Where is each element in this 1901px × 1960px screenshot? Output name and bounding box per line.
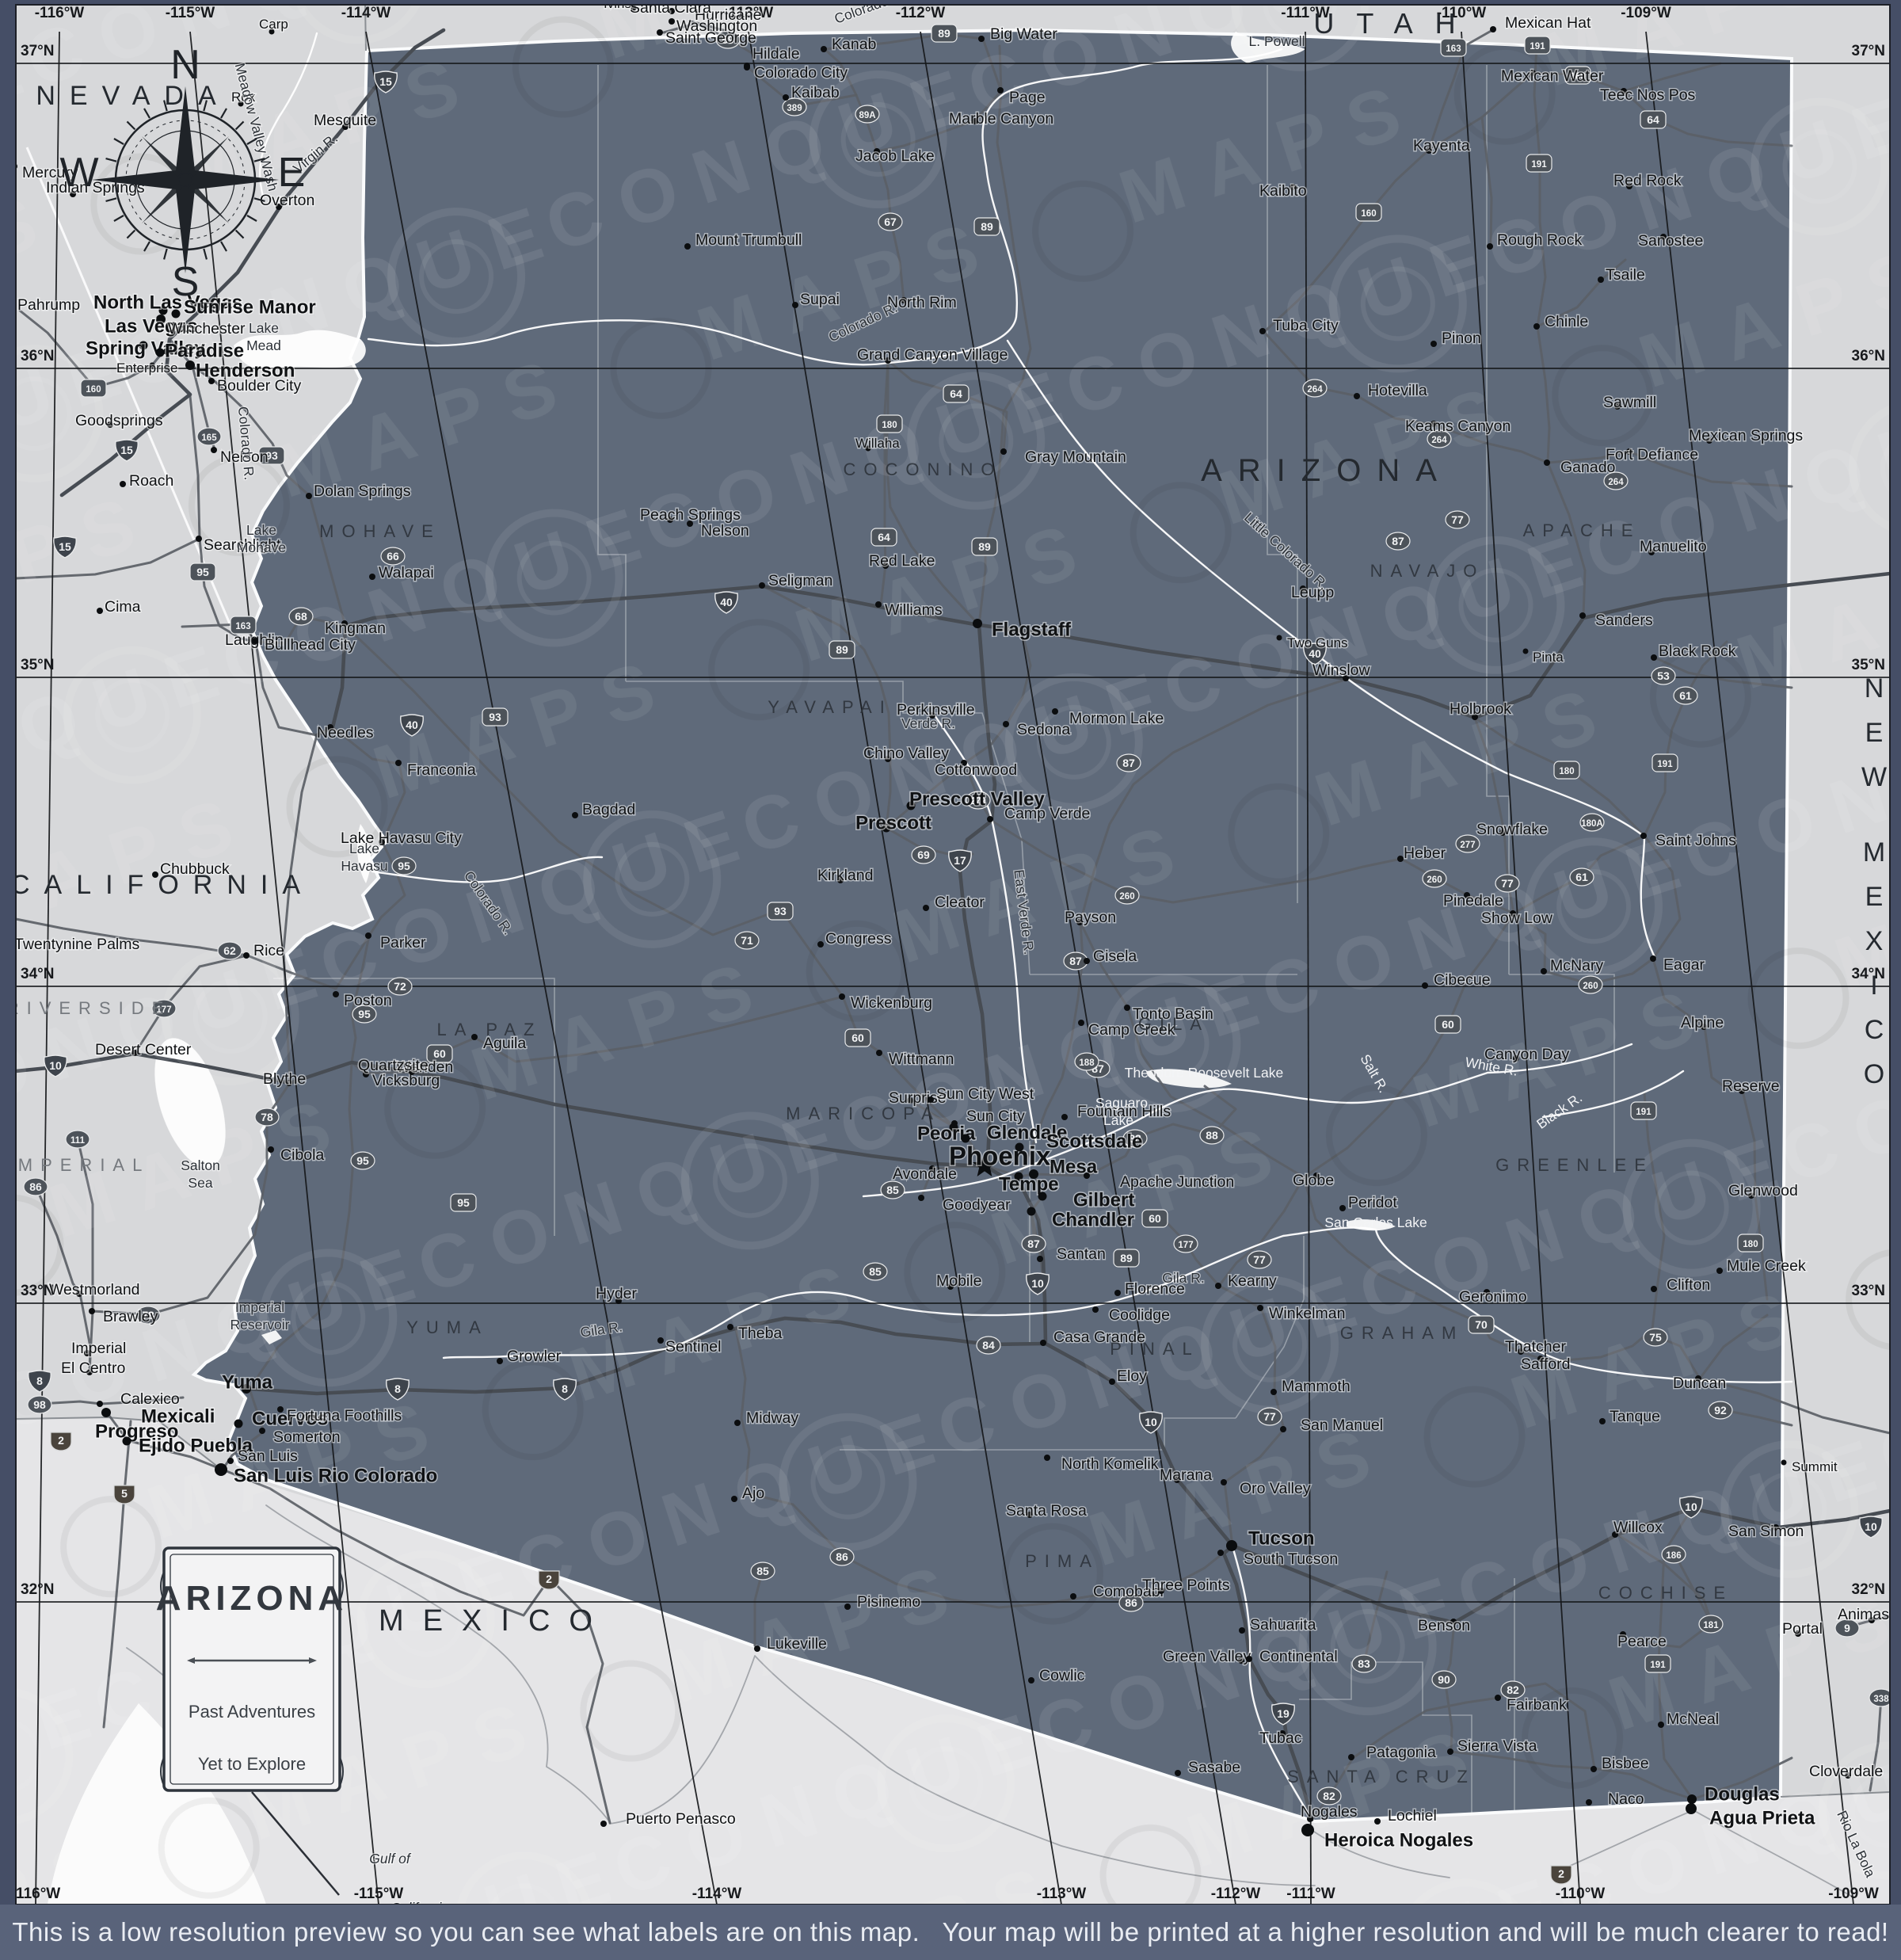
city-label: Supai (800, 291, 840, 308)
svg-text:85: 85 (886, 1184, 899, 1196)
city-dot (684, 243, 691, 250)
city-dot (1061, 1114, 1068, 1120)
city-label: Wickenburg (851, 994, 932, 1012)
city-label: Eagar (1663, 956, 1705, 974)
city-dot (727, 1324, 733, 1330)
city-dot (657, 29, 663, 36)
svg-text:77: 77 (1253, 1253, 1266, 1266)
svg-text:17: 17 (954, 854, 966, 867)
svg-text:8: 8 (394, 1382, 401, 1395)
state-label: MEXICO (379, 1604, 611, 1638)
city-label: Yuma (222, 1371, 273, 1393)
city-label: Sunrise Manor (184, 296, 316, 318)
city-label: Ganado (1560, 459, 1616, 476)
svg-text:70: 70 (1475, 1318, 1488, 1331)
route-shield: 89 (829, 641, 855, 658)
city-label: Mexican Water (1501, 67, 1604, 85)
svg-text:64: 64 (878, 531, 890, 543)
route-shield: 93 (482, 708, 508, 726)
city-dot (1114, 1290, 1121, 1296)
city-label: Dolan Springs (314, 482, 411, 500)
city-dot (1591, 1766, 1597, 1772)
city-dot (1221, 1479, 1227, 1485)
svg-text:264: 264 (1307, 385, 1323, 395)
city-label: Sun City West (936, 1085, 1034, 1103)
city-label: Winkelman (1269, 1305, 1345, 1322)
water-label: Theodore Roosevelt Lake (1125, 1065, 1283, 1081)
city-dot (923, 905, 929, 911)
city-label: Animas (1838, 1606, 1889, 1623)
city-label: Manuelito (1640, 538, 1707, 555)
city-dot (1495, 1695, 1501, 1701)
city-dot (600, 1821, 607, 1827)
svg-text:60: 60 (1442, 1018, 1454, 1031)
svg-text:264: 264 (1431, 436, 1447, 445)
city-label: North Komelik (1061, 1455, 1159, 1473)
svg-text:389: 389 (787, 104, 802, 113)
city-dot (234, 1420, 243, 1428)
svg-text:191: 191 (1531, 160, 1547, 170)
city-label: Page (1009, 89, 1046, 106)
city-label: Teec Nos Pos (1600, 86, 1696, 104)
svg-text:2: 2 (1558, 1867, 1564, 1880)
city-label: Marana (1160, 1466, 1212, 1484)
city-label: Sentinel (665, 1338, 721, 1356)
city-dot (997, 87, 1004, 93)
svg-text:160: 160 (1361, 209, 1376, 219)
grid-label-lon: -114°W (692, 1886, 742, 1902)
svg-text:186: 186 (1666, 1551, 1681, 1561)
city-label: Fairbank (1507, 1696, 1567, 1714)
city-dot (783, 94, 789, 101)
city-label: South Tucson (1244, 1550, 1338, 1568)
svg-text:15: 15 (120, 444, 133, 456)
city-label: Pinta (1533, 650, 1564, 665)
city-dot (1658, 1722, 1664, 1728)
route-shield: 2 (51, 1432, 71, 1451)
city-dot (572, 812, 578, 818)
svg-text:89: 89 (978, 540, 991, 553)
county-label: MARICOPA (786, 1104, 941, 1123)
city-dot (1781, 1460, 1787, 1466)
svg-text:2: 2 (58, 1434, 64, 1447)
city-label: McNeal (1667, 1710, 1719, 1728)
city-dot (1651, 654, 1657, 661)
city-dot (669, 18, 675, 25)
svg-text:60: 60 (851, 1031, 864, 1044)
city-dot (1052, 708, 1058, 715)
city-dot (928, 1096, 934, 1103)
city-label: Gisela (1093, 948, 1137, 965)
city-dot (875, 601, 882, 608)
city-label: Wittmann (889, 1051, 954, 1068)
city-label: Tanque (1610, 1408, 1660, 1425)
svg-text:82: 82 (1507, 1684, 1519, 1696)
city-label: Ejido Puebla (139, 1435, 253, 1456)
svg-text:8: 8 (36, 1375, 43, 1387)
county-label: YAVAPAI (768, 697, 893, 717)
water-label: Sea (188, 1175, 212, 1191)
city-label: Cloverdale (1809, 1763, 1883, 1780)
svg-text:277: 277 (1460, 841, 1475, 850)
city-label: Green Valley (1163, 1648, 1251, 1665)
svg-text:89: 89 (1120, 1252, 1133, 1264)
water-label: Havasu (341, 858, 387, 874)
city-label: Sahuarita (1250, 1616, 1316, 1634)
grid-label-lon: -110°W (1556, 1886, 1606, 1902)
city-dot (211, 447, 217, 453)
svg-text:83: 83 (1358, 1657, 1370, 1670)
city-label: Patagonia (1366, 1744, 1436, 1761)
city-label: Heroica Nogales (1324, 1829, 1473, 1851)
svg-text:69: 69 (917, 848, 930, 861)
city-label: Bisbee (1602, 1755, 1649, 1772)
route-shield: 260 (1115, 887, 1139, 904)
city-dot (97, 1401, 103, 1407)
city-label: San Simon (1728, 1523, 1804, 1540)
route-shield: 69 (912, 846, 935, 864)
city-label: Winslow (1312, 662, 1371, 679)
state-label: CALIFORNIA (10, 870, 314, 900)
grid-label-lon: -112°W (896, 5, 946, 21)
svg-text:10: 10 (1685, 1501, 1697, 1513)
route-shield: 64 (943, 385, 969, 402)
svg-text:95: 95 (358, 1008, 371, 1020)
city-label: Show Low (1481, 909, 1553, 927)
svg-text:87: 87 (1027, 1237, 1040, 1250)
city-dot (1640, 833, 1647, 839)
water-label: L. Powell (1248, 33, 1305, 49)
city-dot (844, 1603, 851, 1610)
city-dot (1422, 982, 1428, 989)
svg-text:180A: 180A (1581, 819, 1603, 829)
city-dot (1348, 1754, 1354, 1760)
svg-text:89: 89 (981, 220, 993, 233)
city-dot (1277, 635, 1282, 641)
city-dot (973, 619, 982, 628)
city-dot (1490, 26, 1496, 32)
city-label: Jacob Lake (855, 147, 935, 165)
city-dot (306, 493, 312, 499)
city-dot (1354, 393, 1360, 399)
compass-letter-w: W (59, 150, 98, 196)
city-label: Willaha (855, 436, 900, 451)
city-dot (1084, 1173, 1090, 1179)
svg-text:5: 5 (121, 1487, 128, 1500)
city-label: Twentynine Palms (14, 936, 139, 953)
svg-text:95: 95 (356, 1154, 369, 1167)
city-label: Kaibito (1259, 182, 1307, 200)
grid-label-lat: 35°N (1852, 657, 1885, 673)
city-label: Clifton (1667, 1276, 1710, 1294)
svg-text:19: 19 (1277, 1707, 1290, 1720)
route-shield: 71 (735, 932, 759, 949)
city-label: Red Lake (869, 552, 935, 570)
city-dot (333, 991, 339, 997)
city-label: Boulder City (217, 377, 301, 395)
city-label: Kirkland (817, 867, 873, 884)
route-shield: 77 (1495, 875, 1519, 892)
city-label: Reserve (1722, 1077, 1780, 1095)
route-shield: 180 (1738, 1234, 1763, 1252)
city-dot (1000, 448, 1007, 455)
svg-text:40: 40 (720, 596, 733, 608)
route-shield: 95 (351, 1152, 375, 1169)
city-label: Colorado City (754, 64, 848, 82)
svg-text:77: 77 (1501, 877, 1514, 890)
city-dot (101, 1408, 111, 1417)
route-shield: 2 (539, 1571, 559, 1589)
city-label: Tuba City (1273, 317, 1339, 334)
city-label: Portal (1782, 1620, 1823, 1638)
grid-label-lon: -116°W (11, 1886, 61, 1902)
city-label: Franconia (407, 761, 476, 779)
svg-text:160: 160 (86, 385, 101, 395)
city-dot (1598, 276, 1604, 283)
city-dot (123, 1437, 131, 1446)
city-label: Cottonwood (935, 761, 1017, 779)
grid-label-lon: -116°W (35, 5, 85, 21)
route-shield: 191 (1526, 154, 1552, 172)
city-label: Ajo (742, 1485, 764, 1502)
city-dot (1015, 1143, 1024, 1152)
route-shield: 61 (1570, 868, 1594, 886)
route-shield: 186 (1662, 1546, 1686, 1563)
city-label: Hildale (752, 45, 800, 63)
city-label: Hotevilla (1368, 382, 1427, 399)
city-label: Prescott (855, 812, 931, 833)
svg-text:15: 15 (379, 75, 392, 88)
title-box-subtitle1: Past Adventures (189, 1702, 315, 1722)
state-label: NEWMEXICO (1861, 673, 1887, 1089)
city-dot (1599, 1418, 1606, 1424)
grid-label-lon: -115°W (166, 5, 215, 21)
city-dot (754, 1645, 760, 1652)
route-shield: 77 (1446, 511, 1469, 528)
svg-text:64: 64 (1647, 113, 1659, 126)
city-dot (1092, 1306, 1099, 1313)
title-box-subtitle2: Yet to Explore (198, 1754, 306, 1774)
city-dot (1259, 328, 1266, 334)
city-label: Theba (738, 1325, 782, 1342)
city-label: Mobile (936, 1272, 981, 1290)
route-shield: 68 (289, 608, 313, 625)
svg-text:64: 64 (950, 387, 962, 400)
grid-label-lon: -109°W (1828, 1886, 1879, 1902)
svg-text:92: 92 (1714, 1404, 1727, 1417)
svg-text:89: 89 (938, 27, 950, 40)
svg-text:260: 260 (1119, 892, 1134, 902)
city-dot (1651, 1286, 1657, 1292)
city-label: Somerton (273, 1428, 341, 1446)
city-dot (821, 46, 827, 52)
route-shield: 95 (190, 563, 215, 581)
svg-text:95: 95 (196, 566, 209, 578)
county-label: GREENLEE (1495, 1155, 1654, 1175)
grid-label-lon: -112°W (1211, 1886, 1261, 1902)
county-label: GRAHAM (1340, 1323, 1465, 1343)
compass-letter-e: E (278, 150, 306, 196)
svg-text:98: 98 (33, 1398, 46, 1411)
route-shield: 86 (24, 1178, 48, 1195)
city-dot (215, 1463, 227, 1476)
city-dot (1124, 1005, 1130, 1011)
svg-text:191: 191 (1657, 760, 1673, 769)
city-dot (1040, 1340, 1046, 1346)
svg-text:89: 89 (836, 643, 848, 656)
city-dot (185, 360, 195, 370)
city-label: Kearny (1228, 1272, 1277, 1290)
city-label: Chino Valley (863, 745, 949, 762)
svg-text:87: 87 (1392, 535, 1404, 547)
svg-text:68: 68 (295, 610, 307, 623)
city-label: Kayenta (1413, 137, 1470, 154)
svg-text:177: 177 (1178, 1241, 1193, 1250)
city-dot (1650, 955, 1656, 962)
route-shield: 89 (931, 25, 957, 42)
city-label: Paradise (165, 340, 244, 361)
city-label: Cima (105, 598, 141, 616)
city-label: Snowflake (1476, 821, 1548, 838)
city-label: Bagdad (582, 801, 635, 818)
svg-text:191: 191 (1530, 42, 1545, 51)
grid-label-lat: 34°N (21, 966, 54, 982)
grid-label-lon: -111°W (1286, 1886, 1335, 1902)
city-label: San Luis (238, 1447, 298, 1465)
grid-label-lat: 34°N (1852, 966, 1885, 982)
route-shield: 90 (1432, 1671, 1456, 1688)
city-label: Tsaile (1606, 266, 1645, 284)
city-dot (497, 1358, 503, 1364)
svg-text:60: 60 (1149, 1212, 1161, 1225)
route-shield: 77 (1248, 1251, 1271, 1268)
city-label: Imperial (71, 1340, 126, 1357)
route-shield: 60 (1435, 1016, 1461, 1033)
svg-text:93: 93 (774, 905, 787, 917)
city-dot (1686, 1803, 1697, 1814)
city-dot (1239, 1627, 1245, 1634)
city-label: Scottsdale (1046, 1131, 1142, 1152)
city-label: Geronimo (1459, 1288, 1527, 1306)
grid-label-lat: 37°N (1852, 43, 1885, 59)
city-label: Pisinemo (857, 1593, 920, 1611)
city-label: Growler (507, 1348, 562, 1365)
route-shield: 53 (1651, 667, 1675, 684)
route-shield: 60 (845, 1029, 870, 1047)
route-shield: 64 (871, 528, 897, 546)
svg-text:84: 84 (982, 1339, 995, 1352)
compass-letter-s: S (172, 259, 200, 305)
route-shield: 89 (974, 218, 1000, 235)
route-shield: 82 (1317, 1787, 1341, 1805)
city-label: Black Rock (1659, 643, 1736, 660)
city-dot (876, 1050, 882, 1056)
city-label: Blythe (263, 1070, 306, 1088)
city-label: Desert Center (95, 1041, 192, 1058)
city-label: Congress (825, 930, 892, 948)
svg-text:53: 53 (1657, 669, 1670, 682)
city-label: Nelson (701, 522, 749, 540)
city-label: Chinle (1545, 313, 1588, 330)
city-label: Leupp (1291, 584, 1334, 601)
city-label: San Luis Rio Colorado (234, 1465, 437, 1486)
route-shield: 62 (218, 942, 242, 959)
city-dot (1044, 1455, 1050, 1461)
city-label: Cibola (280, 1146, 324, 1164)
city-dot (1257, 1305, 1263, 1311)
svg-text:61: 61 (1679, 689, 1692, 702)
city-dot (1003, 721, 1009, 727)
route-shield: 191 (1645, 1655, 1671, 1672)
water-label: Mohave (237, 540, 286, 555)
city-dot (156, 349, 165, 357)
county-label: NAVAJO (1370, 561, 1485, 581)
svg-text:77: 77 (1451, 513, 1464, 526)
city-label: Puerto Penasco (626, 1810, 736, 1828)
city-label: Saint Johns (1655, 832, 1736, 849)
svg-text:8: 8 (562, 1382, 568, 1395)
route-shield: 67 (878, 213, 902, 231)
svg-text:61: 61 (1575, 871, 1588, 883)
city-label: Summit (1792, 1459, 1838, 1474)
grid-label-lat: 32°N (1852, 1581, 1885, 1598)
grid-label-lat: 32°N (21, 1581, 54, 1598)
city-dot (243, 952, 250, 959)
city-dot (1716, 1268, 1723, 1274)
city-dot (657, 1337, 664, 1344)
svg-text:163: 163 (1446, 44, 1461, 54)
city-dot (978, 36, 985, 42)
city-label: Pahrump (17, 296, 80, 314)
compass-letter-n: N (170, 42, 200, 88)
route-shield: 89A (855, 105, 879, 123)
city-dot (792, 302, 798, 308)
city-label: Goodyear (943, 1196, 1011, 1214)
state-label: UTAH (1313, 7, 1477, 40)
city-label: Mesquite (314, 112, 376, 129)
svg-text:71: 71 (741, 934, 753, 947)
svg-text:67: 67 (884, 215, 897, 228)
city-label: Coolidge (1109, 1306, 1170, 1324)
route-shield: 160 (81, 379, 106, 397)
city-label: Sedona (1017, 721, 1070, 738)
water-label: Gulf of (369, 1851, 412, 1867)
city-label: Sanders (1595, 612, 1653, 629)
svg-text:165: 165 (201, 433, 217, 443)
city-dot (1271, 1389, 1277, 1395)
city-label: Payson (1065, 909, 1116, 926)
city-label: Midway (746, 1409, 798, 1427)
svg-text:163: 163 (235, 622, 250, 631)
city-label: Peridot (1348, 1194, 1397, 1211)
city-dot (687, 521, 693, 527)
city-label: North Rim (887, 294, 957, 311)
county-label: PIMA (1025, 1551, 1099, 1571)
route-shield: 5 (114, 1485, 135, 1504)
city-label: Bullhead City (265, 636, 356, 654)
route-shield: 83 (1352, 1655, 1376, 1672)
city-dot (1215, 1283, 1221, 1289)
grid-label-lon: -113°W (1037, 1886, 1087, 1902)
city-dot (208, 378, 215, 384)
city-dot (1038, 1192, 1047, 1201)
water-label: Imperial (235, 1299, 284, 1315)
svg-text:188: 188 (1079, 1058, 1095, 1068)
city-dot (89, 1308, 95, 1314)
water-label: Reservoir (230, 1317, 290, 1333)
city-label: Seligman (768, 572, 832, 589)
route-shield: 98 (28, 1396, 51, 1413)
